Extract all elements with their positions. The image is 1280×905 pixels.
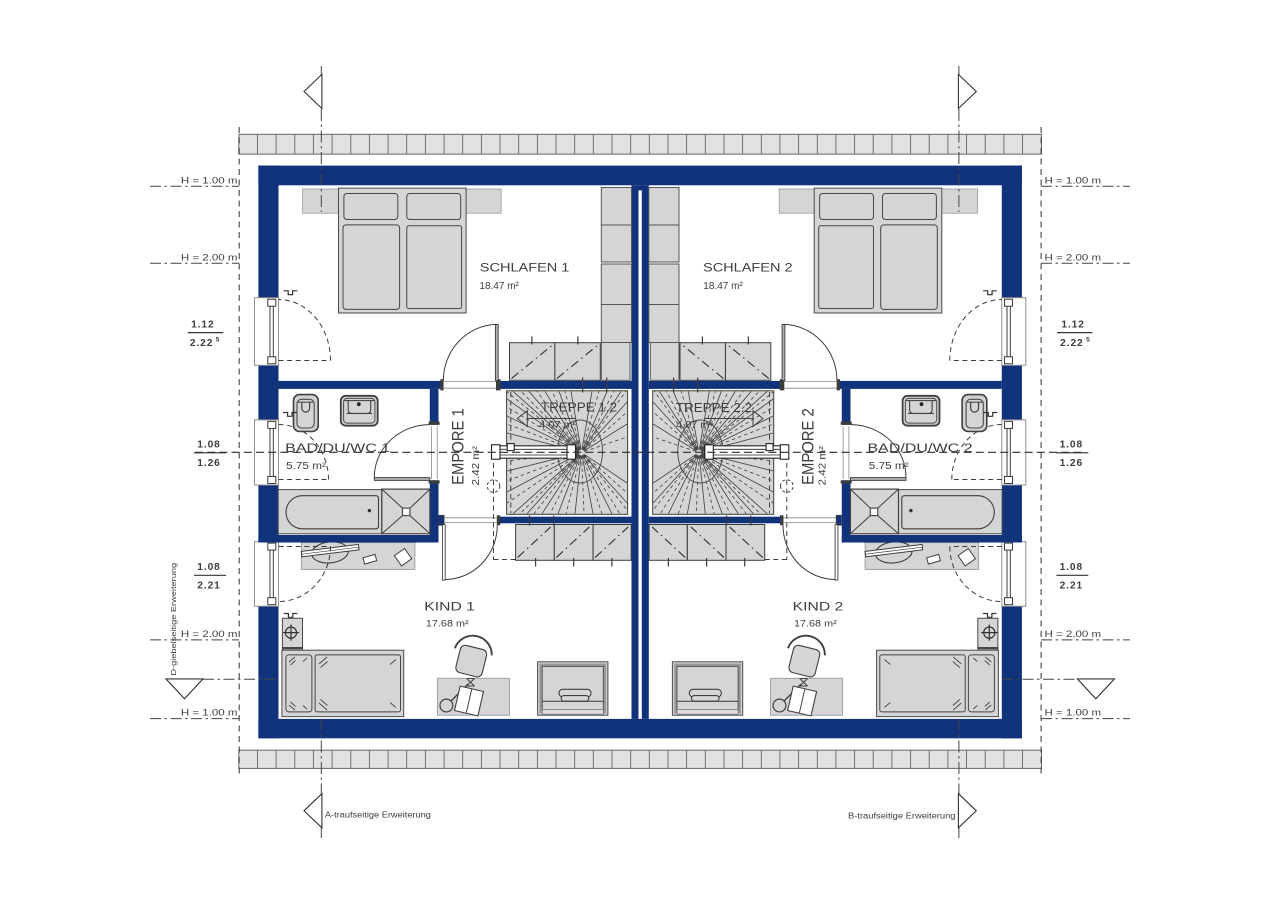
svg-text:2.21: 2.21 bbox=[197, 580, 220, 591]
svg-text:5: 5 bbox=[216, 337, 220, 344]
svg-text:2.42 m²: 2.42 m² bbox=[818, 445, 829, 485]
svg-text:1.08: 1.08 bbox=[1060, 440, 1083, 451]
svg-text:4.07 m²: 4.07 m² bbox=[676, 420, 713, 431]
svg-text:17.68 m²: 17.68 m² bbox=[426, 618, 470, 629]
svg-text:1.08: 1.08 bbox=[197, 440, 220, 451]
svg-text:17.68 m²: 17.68 m² bbox=[794, 618, 838, 629]
svg-text:1.26: 1.26 bbox=[1060, 458, 1083, 469]
svg-text:H = 2.00 m: H = 2.00 m bbox=[181, 252, 238, 262]
svg-text:B-traufseitige Erweiterung: B-traufseitige Erweiterung bbox=[848, 812, 956, 821]
svg-text:2.22: 2.22 bbox=[190, 338, 213, 349]
svg-text:BAD/DU/WC 1: BAD/DU/WC 1 bbox=[285, 441, 390, 455]
svg-text:H = 2.00 m: H = 2.00 m bbox=[1045, 252, 1102, 262]
svg-text:1.08: 1.08 bbox=[197, 562, 220, 573]
svg-text:BAD/DU/WC 2: BAD/DU/WC 2 bbox=[868, 441, 973, 455]
svg-text:TREPPE 2.2: TREPPE 2.2 bbox=[676, 400, 752, 415]
svg-text:H = 1.00 m: H = 1.00 m bbox=[181, 707, 238, 717]
svg-text:H = 2.00 m: H = 2.00 m bbox=[181, 629, 238, 639]
svg-text:A-traufseitige Erweiterung: A-traufseitige Erweiterung bbox=[325, 810, 431, 819]
svg-text:TREPPE 1.2: TREPPE 1.2 bbox=[541, 400, 617, 415]
svg-text:2.42 m²: 2.42 m² bbox=[471, 445, 482, 485]
svg-text:1.26: 1.26 bbox=[197, 458, 220, 469]
svg-text:EMPORE 1: EMPORE 1 bbox=[450, 408, 468, 485]
svg-text:1.08: 1.08 bbox=[1060, 562, 1083, 573]
svg-text:SCHLAFEN 1: SCHLAFEN 1 bbox=[480, 261, 570, 275]
svg-text:18.47 m²: 18.47 m² bbox=[703, 281, 743, 292]
svg-text:KIND 2: KIND 2 bbox=[793, 600, 844, 614]
svg-text:1.12: 1.12 bbox=[1061, 320, 1084, 331]
svg-text:H = 1.00 m: H = 1.00 m bbox=[1045, 707, 1102, 717]
svg-text:2.22: 2.22 bbox=[1060, 338, 1083, 349]
svg-text:EMPORE 2: EMPORE 2 bbox=[800, 408, 818, 485]
svg-text:4.07 m²: 4.07 m² bbox=[539, 420, 576, 431]
svg-text:5: 5 bbox=[1086, 337, 1090, 344]
svg-text:18.47 m²: 18.47 m² bbox=[479, 281, 519, 292]
svg-text:5.75 m²: 5.75 m² bbox=[286, 461, 327, 472]
svg-text:2.21: 2.21 bbox=[1060, 580, 1083, 591]
svg-text:H = 1.00 m: H = 1.00 m bbox=[181, 176, 238, 186]
svg-text:1.12: 1.12 bbox=[191, 320, 214, 331]
svg-text:KIND 1: KIND 1 bbox=[424, 600, 475, 614]
svg-text:H = 1.00 m: H = 1.00 m bbox=[1045, 176, 1102, 186]
svg-text:SCHLAFEN 2: SCHLAFEN 2 bbox=[703, 261, 793, 275]
svg-text:D-giebelseitige Erweiterung: D-giebelseitige Erweiterung bbox=[169, 563, 178, 676]
svg-text:5.75 m²: 5.75 m² bbox=[869, 461, 910, 472]
svg-text:H = 2.00 m: H = 2.00 m bbox=[1045, 629, 1102, 639]
